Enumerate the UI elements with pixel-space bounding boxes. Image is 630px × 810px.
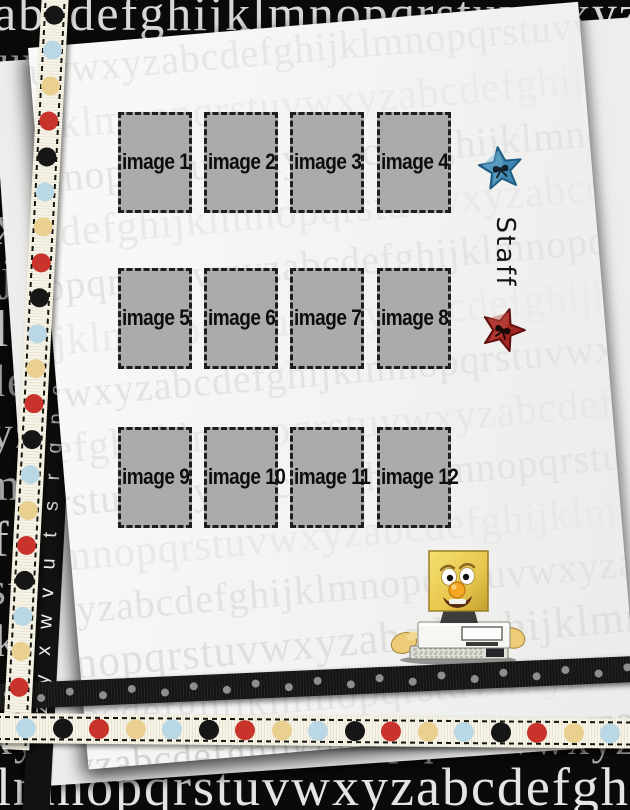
ribbon-dot <box>89 719 109 739</box>
scrapbook-page: abcdefghijklmnopqrstuvwxyzabcdefghijklmn… <box>0 0 630 810</box>
ribbon-dot <box>29 288 49 308</box>
ribbon-dot <box>623 663 630 671</box>
image-placeholder-3[interactable]: image 3 <box>290 112 364 213</box>
image-placeholder-8[interactable]: image 8 <box>377 268 451 369</box>
image-placeholder-label: image 3 <box>294 150 361 176</box>
image-placeholder-label: image 10 <box>208 465 285 491</box>
ribbon-dot <box>22 429 42 449</box>
image-placeholder-label: image 4 <box>381 150 448 176</box>
ribbon-dot <box>313 677 321 685</box>
ribbon-dot <box>42 41 62 61</box>
ribbon-dot <box>26 359 46 379</box>
ribbon-dot <box>409 678 417 686</box>
ribbon-dot <box>99 691 107 699</box>
image-placeholder-label: image 11 <box>294 465 370 491</box>
image-placeholder-9[interactable]: image 9 <box>118 427 192 528</box>
image-placeholder-2[interactable]: image 2 <box>204 112 278 213</box>
image-placeholder-1[interactable]: image 1 <box>118 112 192 213</box>
ribbon-dot <box>39 111 59 131</box>
ribbon-dot <box>490 722 510 742</box>
image-placeholder-12[interactable]: image 12 <box>377 427 451 528</box>
ribbon-dot <box>9 677 29 697</box>
ribbon-dot <box>308 721 328 741</box>
ribbon-dot <box>128 685 136 693</box>
ribbon-dot <box>125 719 145 739</box>
image-placeholder-11[interactable]: image 11 <box>290 427 364 528</box>
ribbon-dot <box>33 217 53 237</box>
image-placeholder-10[interactable]: image 10 <box>204 427 278 528</box>
ribbon-dot <box>66 688 74 696</box>
image-placeholder-label: image 5 <box>122 306 189 332</box>
ribbon-dot <box>563 723 583 743</box>
ribbon-dot <box>35 182 55 202</box>
ribbon-dot <box>600 723 620 743</box>
ribbon-dot <box>24 394 44 414</box>
ribbon-dot <box>44 5 64 25</box>
ribbon-dot <box>594 669 602 677</box>
image-placeholder-6[interactable]: image 6 <box>204 268 278 369</box>
ribbon-dot <box>41 76 61 96</box>
image-placeholder-5[interactable]: image 5 <box>118 268 192 369</box>
ribbon-dot <box>18 500 38 520</box>
image-placeholder-label: image 2 <box>208 150 275 176</box>
ribbon-dot <box>37 147 57 167</box>
ribbon-dot <box>13 606 33 626</box>
computer-character <box>390 546 526 673</box>
ribbon-dot <box>235 720 255 740</box>
ribbon-dot <box>471 675 479 683</box>
ribbon-dot <box>527 723 547 743</box>
ribbon-dot <box>381 721 401 741</box>
ribbon-dot <box>344 721 364 741</box>
ribbon-dot <box>375 674 383 682</box>
image-placeholder-7[interactable]: image 7 <box>290 268 364 369</box>
ribbon-dot <box>28 323 48 343</box>
polkadot-ribbon-horizontal <box>0 713 630 749</box>
image-placeholder-label: image 1 <box>122 150 189 176</box>
ribbon-dot <box>37 694 45 702</box>
image-placeholder-label: image 12 <box>381 465 458 491</box>
image-placeholder-4[interactable]: image 4 <box>377 112 451 213</box>
ribbon-dot <box>285 683 293 691</box>
staff-label: Staff <box>489 197 521 307</box>
ribbon-dot <box>15 571 35 591</box>
ribbon-dot <box>499 669 507 677</box>
ribbon-dot <box>437 671 445 679</box>
ribbon-dot <box>347 680 355 688</box>
ribbon-dot <box>17 535 37 555</box>
ribbon-dot <box>52 719 72 739</box>
image-placeholder-label: image 6 <box>208 306 275 332</box>
image-placeholder-label: image 7 <box>294 306 361 332</box>
ribbon-dot <box>162 719 182 739</box>
image-placeholder-label: image 8 <box>381 306 448 332</box>
ribbon-dot <box>223 686 231 694</box>
ribbon-dot <box>454 722 474 742</box>
ribbon-dot <box>251 679 259 687</box>
ribbon-dot <box>198 720 218 740</box>
ribbon-dot <box>271 720 291 740</box>
image-placeholder-label: image 9 <box>122 465 189 491</box>
ribbon-dot <box>16 718 36 738</box>
ribbon-dot <box>20 465 40 485</box>
ribbon-dot <box>190 682 198 690</box>
ribbon-dot <box>561 666 569 674</box>
ribbon-dot <box>161 688 169 696</box>
ribbon-dot <box>417 722 437 742</box>
ribbon-dot <box>31 253 51 273</box>
blue-star-icon <box>472 141 529 202</box>
ribbon-dot <box>11 642 31 662</box>
ribbon-dot <box>532 672 540 680</box>
